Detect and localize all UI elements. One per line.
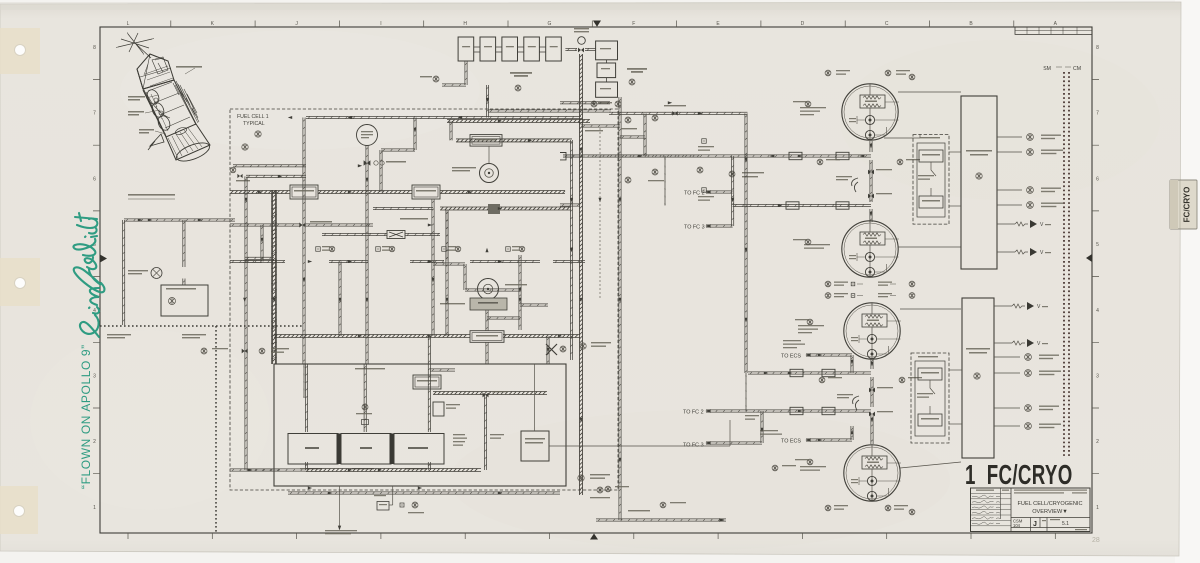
- svg-text:TO ECS: TO ECS: [781, 439, 801, 445]
- svg-text:1: 1: [1096, 505, 1099, 511]
- svg-text:“FLOWN ON APOLLO 9”: “FLOWN ON APOLLO 9”: [79, 344, 93, 489]
- svg-text:5: 5: [1096, 242, 1099, 248]
- svg-text:CM: CM: [1073, 66, 1081, 72]
- svg-text:8: 8: [1096, 45, 1099, 51]
- svg-text:H: H: [463, 21, 467, 27]
- svg-text:104: 104: [1013, 523, 1021, 528]
- svg-text:7: 7: [93, 111, 96, 117]
- svg-text:TO FC 2: TO FC 2: [684, 191, 705, 197]
- svg-text:6: 6: [93, 176, 96, 182]
- svg-text:TO FC 2: TO FC 2: [683, 410, 704, 416]
- svg-text:8: 8: [93, 45, 96, 51]
- svg-text:FUEL CELL 1: FUEL CELL 1: [237, 114, 269, 120]
- svg-text:1: 1: [93, 505, 96, 511]
- svg-text:3: 3: [93, 374, 96, 380]
- svg-text:F: F: [632, 21, 635, 27]
- svg-text:4: 4: [1096, 308, 1099, 314]
- svg-text:FC/CRYO: FC/CRYO: [1183, 187, 1192, 223]
- svg-text:3: 3: [1096, 374, 1099, 380]
- svg-text:2: 2: [1096, 439, 1099, 445]
- svg-text:I: I: [380, 21, 381, 27]
- svg-text:1 FC/CRYO: 1 FC/CRYO: [965, 459, 1073, 489]
- svg-text:TO FC 3: TO FC 3: [684, 225, 705, 231]
- svg-text:2: 2: [93, 439, 96, 445]
- svg-text:TO FC 3: TO FC 3: [683, 443, 704, 449]
- svg-text:TO ECS: TO ECS: [781, 354, 801, 360]
- svg-text:28: 28: [1092, 537, 1100, 544]
- svg-text:5.1: 5.1: [1062, 521, 1069, 527]
- svg-text:OVERVIEW▼: OVERVIEW▼: [1032, 509, 1068, 515]
- svg-text:SM: SM: [1043, 66, 1051, 72]
- svg-text:G: G: [548, 21, 552, 27]
- svg-text:C: C: [885, 21, 889, 27]
- svg-text:TYPICAL: TYPICAL: [243, 121, 265, 127]
- svg-text:J: J: [1033, 521, 1037, 528]
- svg-text:6: 6: [1096, 176, 1099, 182]
- svg-text:FUEL CELL/CRYOGENIC: FUEL CELL/CRYOGENIC: [1018, 501, 1083, 507]
- svg-text:7: 7: [1096, 111, 1099, 117]
- svg-text:L: L: [127, 21, 130, 27]
- svg-text:D: D: [801, 21, 805, 27]
